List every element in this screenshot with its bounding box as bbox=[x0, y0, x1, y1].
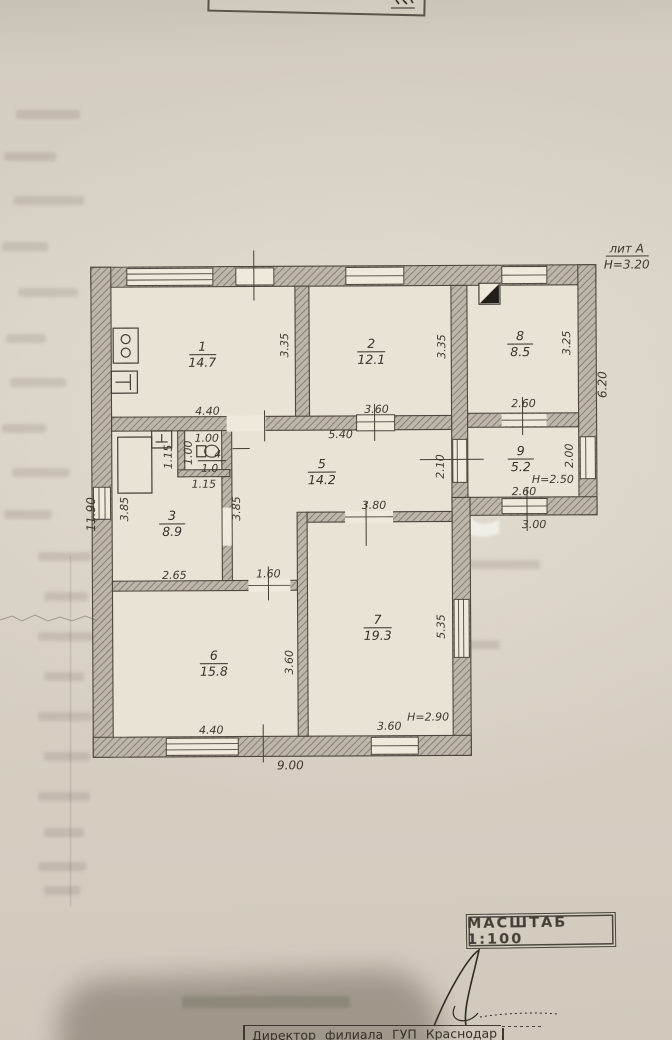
dim-335-room2: 3.35 bbox=[435, 334, 448, 359]
dim-380: 3.80 bbox=[362, 499, 387, 512]
dim-160: 1.60 bbox=[256, 567, 281, 580]
svg-text:15.8: 15.8 bbox=[200, 664, 228, 679]
scale-stamp: МАСШТАБ 1:100 bbox=[466, 912, 616, 949]
litera-annotation: лит А Н=3.20 bbox=[604, 241, 650, 271]
dim-100-a: 1.00 bbox=[194, 432, 219, 445]
scale-label: МАСШТАБ 1:100 bbox=[467, 913, 615, 947]
dim-440-top: 4.40 bbox=[195, 405, 220, 418]
svg-text:4: 4 bbox=[214, 449, 221, 461]
dim-325: 3.25 bbox=[560, 331, 573, 356]
dim-260-a: 2.60 bbox=[511, 397, 536, 410]
dim-535: 5.35 bbox=[435, 614, 448, 639]
dim-200: 2.00 bbox=[563, 444, 576, 469]
signature bbox=[434, 950, 558, 1026]
signature-block: Директор филиала ГУП Краснодар bbox=[240, 1020, 660, 1040]
svg-text:8: 8 bbox=[516, 328, 524, 343]
dim-115-b: 1.15 bbox=[192, 478, 217, 491]
svg-text:14.2: 14.2 bbox=[308, 472, 336, 487]
dim-300: 3.00 bbox=[522, 518, 547, 531]
dim-540: 5.40 bbox=[328, 428, 353, 441]
dim-210: 2.10 bbox=[434, 454, 447, 479]
dim-360-room6: 3.60 bbox=[283, 650, 296, 675]
plan-geometry: 114.7 212.1 88.5 95.2 514.2 38.9 615.8 7… bbox=[83, 241, 653, 773]
svg-text:7: 7 bbox=[374, 612, 382, 627]
svg-text:14.7: 14.7 bbox=[188, 355, 216, 370]
building-height-label: Н=3.20 bbox=[604, 257, 650, 271]
floor-plan: 114.7 212.1 88.5 95.2 514.2 38.9 615.8 7… bbox=[0, 0, 672, 1040]
top-stamp-marks bbox=[391, 0, 415, 8]
svg-text:9: 9 bbox=[517, 443, 525, 458]
dim-115-a: 1.15 bbox=[162, 445, 175, 470]
fold-line bbox=[0, 615, 96, 621]
dim-385-a: 3.85 bbox=[118, 497, 131, 522]
svg-text:6: 6 bbox=[210, 648, 218, 663]
dim-h250: Н=2.50 bbox=[532, 473, 574, 486]
scanned-floorplan-page: аякс bbox=[0, 0, 672, 1040]
svg-text:1.0: 1.0 bbox=[201, 463, 218, 475]
svg-text:5.2: 5.2 bbox=[511, 459, 531, 474]
svg-text:2: 2 bbox=[367, 336, 375, 351]
dim-385-b: 3.85 bbox=[230, 496, 243, 521]
dim-100-b: 1.00 bbox=[182, 441, 195, 466]
svg-text:3: 3 bbox=[168, 508, 176, 523]
dim-440-bottom: 4.40 bbox=[199, 724, 224, 737]
dim-260-b: 2.60 bbox=[512, 485, 537, 498]
svg-text:8.9: 8.9 bbox=[162, 524, 182, 539]
dim-620: 6.20 bbox=[595, 371, 609, 398]
dim-h290: Н=2.90 bbox=[407, 710, 449, 723]
litera-label: лит А bbox=[608, 241, 644, 255]
svg-text:12.1: 12.1 bbox=[357, 352, 385, 367]
signature-title: Директор филиала ГУП Краснодар bbox=[252, 1026, 497, 1040]
dim-335-room1: 3.35 bbox=[278, 333, 291, 358]
svg-text:8.5: 8.5 bbox=[510, 344, 530, 359]
dim-900: 9.00 bbox=[277, 758, 304, 772]
svg-text:19.3: 19.3 bbox=[364, 628, 392, 643]
dim-1190: 11.90 bbox=[84, 497, 98, 532]
dim-265: 2.65 bbox=[162, 569, 187, 582]
svg-text:1: 1 bbox=[198, 339, 206, 354]
svg-text:5: 5 bbox=[318, 456, 326, 471]
dim-360-top: 3.60 bbox=[364, 403, 389, 416]
dim-360-bottom: 3.60 bbox=[377, 720, 402, 733]
